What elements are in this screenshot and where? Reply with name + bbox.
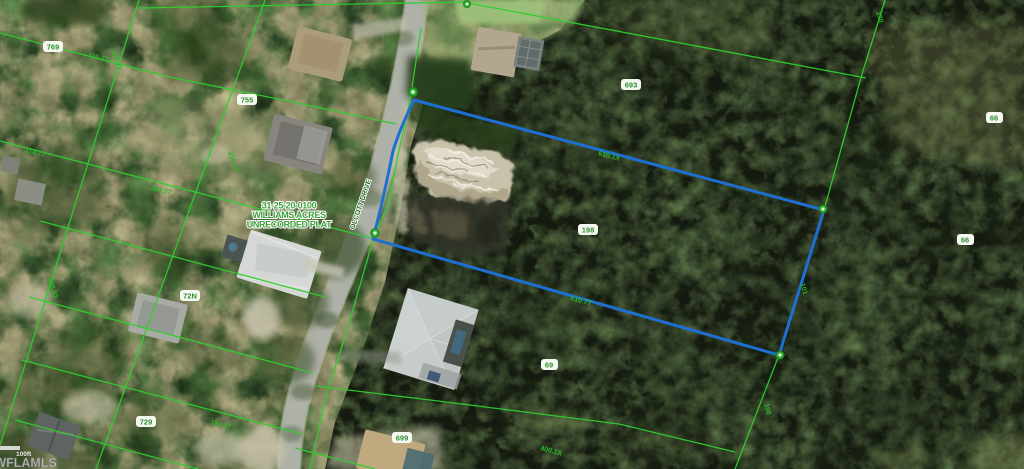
svg-text:66: 66 (961, 236, 969, 245)
svg-text:UNRECORDED PLAT: UNRECORDED PLAT (247, 220, 332, 230)
svg-text:699: 699 (396, 434, 409, 443)
svg-text:66: 66 (990, 114, 998, 123)
svg-text:729: 729 (140, 418, 153, 427)
svg-text:72N: 72N (183, 292, 197, 301)
svg-text:69: 69 (545, 361, 553, 370)
svg-text:755: 755 (241, 96, 254, 105)
svg-text:198: 198 (582, 226, 595, 235)
svg-text:31-25-20-0100: 31-25-20-0100 (262, 201, 317, 211)
svg-text:769: 769 (47, 43, 60, 52)
svg-text:SWFLAMLS: SWFLAMLS (0, 456, 57, 469)
svg-text:WILLIAMS ACRES: WILLIAMS ACRES (252, 210, 326, 220)
svg-text:693: 693 (625, 81, 638, 90)
